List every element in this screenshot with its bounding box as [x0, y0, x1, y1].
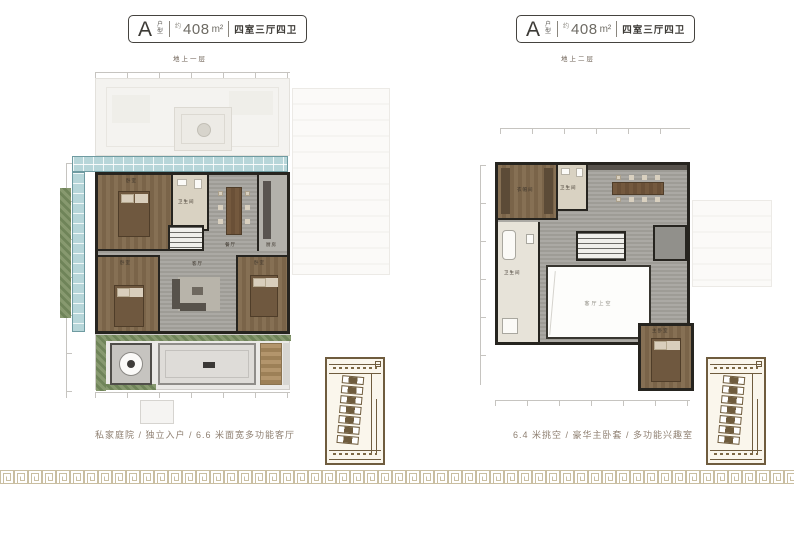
room-label: 餐厅 [225, 242, 236, 248]
bed [250, 275, 278, 317]
garden-hedge-left [96, 335, 106, 391]
room-cloakroom: 衣帽间 [498, 165, 558, 220]
caption-left: 私家庭院 / 独立入户 / 6.6 米面宽多功能客厅 [80, 428, 310, 441]
wood-deck-steps [260, 343, 282, 385]
keymap-building [339, 405, 362, 415]
unit-letter-suffix: 户型 [157, 22, 164, 36]
staircase [576, 231, 626, 261]
badge-divider [228, 21, 229, 37]
patio [158, 343, 256, 385]
toilet-fixture [526, 234, 534, 244]
room-label: 客厅 [192, 261, 203, 267]
sink-fixture [177, 179, 187, 186]
keymap-building [718, 425, 741, 435]
long-table [612, 182, 664, 195]
keymap-building [719, 415, 742, 425]
room-label: 衣帽间 [517, 187, 534, 193]
keymap-building [340, 395, 363, 405]
keymap-road-top [329, 364, 381, 374]
keymap-building [720, 405, 743, 415]
room-spec: 四室三厅四卫 [234, 22, 297, 36]
dimension-line-bottom [495, 400, 690, 406]
entry-stub [140, 400, 174, 424]
unit-letter: A [138, 19, 152, 40]
water-feature-center [127, 360, 135, 368]
keymap-north-marker [375, 361, 381, 367]
side-greenery [60, 188, 71, 318]
keymap-building [723, 375, 746, 385]
badge-divider [557, 21, 558, 37]
level2-body: 衣帽间 卫生间 卫生间 [495, 162, 690, 345]
study-counter [588, 165, 687, 170]
area-value: 408 [183, 21, 210, 38]
fire-pit [203, 362, 215, 368]
water-feature [110, 343, 152, 385]
keymap-road-bottom [710, 450, 762, 460]
wardrobe [544, 168, 553, 214]
keymap-road-right [371, 373, 372, 453]
keymap-building [717, 435, 740, 445]
area-unit: m² [600, 24, 612, 35]
floorplan-level1: 卧室 卫生间 餐厅 厨房 [60, 68, 310, 430]
greek-key-border [0, 470, 794, 485]
table-chairs-top [616, 175, 621, 180]
wardrobe [501, 168, 510, 214]
keymap-road-label [333, 453, 377, 455]
toilet-fixture [576, 168, 583, 177]
level1-body: 卧室 卫生间 餐厅 厨房 [95, 172, 290, 334]
room-bedroom-c: 卧室 [236, 255, 287, 331]
toilet-fixture [194, 179, 202, 189]
floorplan-sheet: A 户型 约 408 m² 四室三厅四卫 地上一层 [0, 0, 794, 536]
keymap-building [336, 435, 359, 445]
keymap-building [722, 385, 745, 395]
glass-sunroom [72, 156, 288, 172]
keymap-road-top [710, 364, 762, 374]
living-room-void: 客厅上空 [546, 265, 651, 339]
staircase [168, 225, 204, 251]
keymap-building [337, 425, 360, 435]
keymap-building [341, 385, 364, 395]
side-slab [283, 343, 290, 385]
unit-type-badge-left: A 户型 约 408 m² 四室三厅四卫 [128, 15, 307, 43]
dining-table [226, 187, 242, 235]
area-unit: m² [212, 24, 224, 35]
site-key-map-left [325, 357, 385, 465]
unit-letter: A [526, 19, 540, 40]
void-label: 客厅上空 [548, 300, 649, 307]
area-approx-prefix: 约 [563, 21, 569, 30]
room-bath-a: 卫生间 [558, 165, 588, 211]
room-label: 卧室 [126, 178, 137, 184]
bathtub [502, 230, 516, 260]
glass-side-wall [72, 172, 85, 332]
table-chairs-bottom [616, 197, 621, 202]
courtyard-feature-circle [197, 123, 211, 137]
dining-chairs-right [245, 191, 250, 196]
area-approx-prefix: 约 [175, 21, 181, 30]
sofa-seat [180, 303, 206, 311]
room-label: 卫生间 [504, 270, 521, 276]
courtyard-feature [174, 107, 232, 151]
coffee-table [192, 287, 203, 295]
caption-right: 6.4 米挑空 / 豪华主卧套 / 多功能兴趣室 [488, 428, 718, 441]
room-label: 卧室 [254, 260, 265, 266]
keymap-road-right [752, 373, 753, 453]
kitchen-counter [263, 181, 271, 239]
room-multifunction [588, 165, 687, 227]
bed-pillows [121, 194, 134, 203]
room-kitchen: 厨房 [257, 175, 287, 251]
keymap-building [342, 375, 365, 385]
bed [114, 285, 144, 327]
badge-divider [616, 21, 617, 37]
courtyard-pad-left [112, 95, 150, 123]
bed [118, 191, 150, 237]
keymap-road-right-2 [757, 399, 758, 453]
front-courtyard [95, 78, 290, 156]
keymap-road-label [333, 367, 377, 369]
badge-divider [169, 21, 170, 37]
room-bath-a: 卫生间 [173, 175, 209, 231]
keymap-building-column [336, 375, 365, 453]
floorplan-level2: 衣帽间 卫生间 卫生间 [480, 120, 720, 410]
keymap-north-marker [756, 361, 762, 367]
keymap-building [338, 415, 361, 425]
room-bath-b: 卫生间 [498, 222, 540, 342]
shower-stall [502, 318, 518, 334]
floor-label-left: 地上一层 [128, 53, 252, 63]
garden-hedge-top [96, 335, 291, 341]
room-living: 客厅 [160, 255, 236, 331]
area-value: 408 [571, 21, 598, 38]
keymap-road-right-2 [376, 399, 377, 453]
room-bedroom-b: 卧室 [98, 255, 160, 331]
dimension-line-top [500, 128, 690, 134]
unit-letter-suffix: 户型 [545, 22, 552, 36]
elevator-shaft [653, 225, 687, 261]
keymap-building [721, 395, 744, 405]
keymap-road-label [714, 367, 758, 369]
room-label: 卧室 [120, 260, 131, 266]
site-key-map-right [706, 357, 766, 465]
floor-label-right: 地上二层 [516, 53, 640, 63]
private-garden-terrace [95, 334, 290, 390]
room-label: 卫生间 [178, 199, 195, 205]
bed-pillows [253, 278, 266, 287]
keymap-road-bottom [329, 450, 381, 460]
bed-pillows [654, 341, 667, 350]
room-dining: 餐厅 [209, 175, 257, 251]
dining-chairs-left [218, 191, 223, 196]
sink-fixture [561, 168, 570, 175]
room-label: 厨房 [266, 242, 277, 248]
keymap-building-column [717, 375, 746, 453]
dimension-line-left [480, 165, 486, 385]
keymap-road-label [714, 453, 758, 455]
dimension-line-bottom [95, 392, 290, 398]
room-master-bedroom: 主卧室 [638, 323, 694, 391]
room-label: 主卧室 [652, 328, 669, 334]
room-label: 卫生间 [560, 185, 577, 191]
courtyard-pad-right [229, 91, 273, 115]
unit-type-badge-right: A 户型 约 408 m² 四室三厅四卫 [516, 15, 695, 43]
sofa [172, 279, 180, 309]
room-bedroom-a: 卧室 [98, 175, 173, 251]
bed [651, 338, 681, 382]
bed-pillows [117, 288, 130, 297]
room-spec: 四室三厅四卫 [622, 22, 685, 36]
